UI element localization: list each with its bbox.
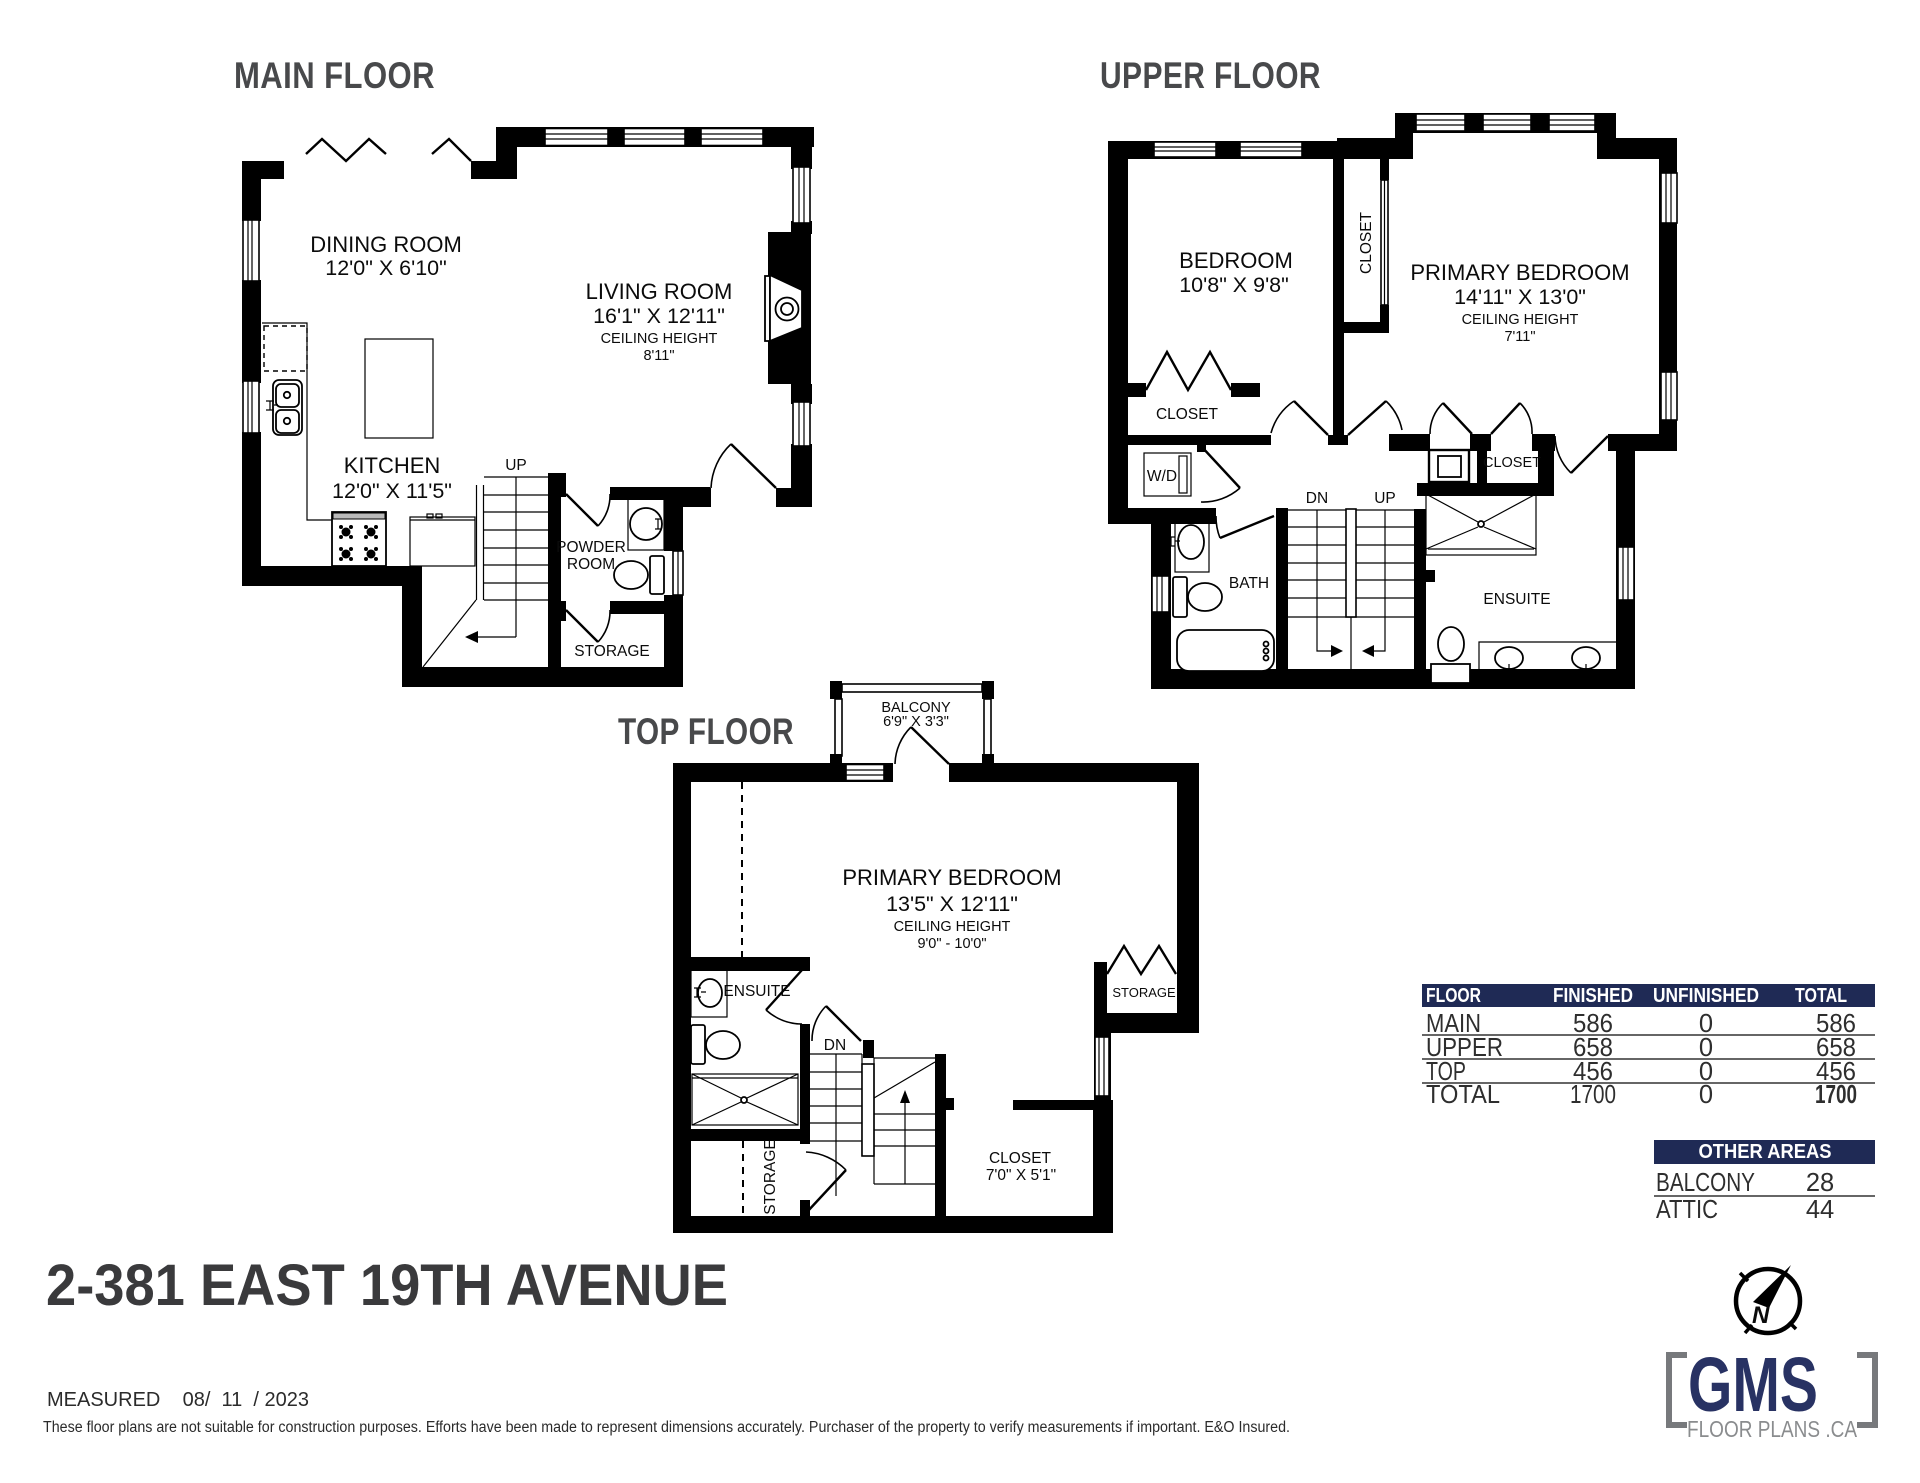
svg-text:BALCONY: BALCONY xyxy=(1656,1169,1755,1197)
svg-text:TOP FLOOR: TOP FLOOR xyxy=(618,711,794,752)
svg-text:10'8" X 9'8": 10'8" X 9'8" xyxy=(1179,273,1289,297)
svg-text:BATH: BATH xyxy=(1229,575,1269,592)
svg-text:1700: 1700 xyxy=(1815,1081,1857,1109)
svg-text:ENSUITE: ENSUITE xyxy=(1483,591,1550,608)
svg-text:DINING ROOM: DINING ROOM xyxy=(310,232,462,257)
svg-text:FLOOR PLANS .CA: FLOOR PLANS .CA xyxy=(1687,1416,1858,1442)
svg-text:1700: 1700 xyxy=(1570,1081,1616,1109)
svg-text:UP: UP xyxy=(505,457,527,474)
svg-text:MAIN FLOOR: MAIN FLOOR xyxy=(234,55,435,96)
svg-text:CLOSET: CLOSET xyxy=(1358,211,1375,274)
svg-text:12'0" X 11'5": 12'0" X 11'5" xyxy=(332,479,452,503)
svg-text:FLOOR: FLOOR xyxy=(1426,985,1481,1007)
svg-text:6'9" X 3'3": 6'9" X 3'3" xyxy=(883,714,949,730)
svg-text:N: N xyxy=(1752,1302,1770,1329)
svg-text:ATTIC: ATTIC xyxy=(1656,1196,1718,1224)
svg-text:2-381 EAST 19TH AVENUE: 2-381 EAST 19TH AVENUE xyxy=(46,1253,728,1318)
svg-text:CLOSET: CLOSET xyxy=(989,1150,1052,1167)
svg-text:12'0" X 6'10": 12'0" X 6'10" xyxy=(325,256,447,280)
svg-text:PRIMARY BEDROOM: PRIMARY BEDROOM xyxy=(1410,260,1629,285)
svg-text:ROOM: ROOM xyxy=(567,556,615,573)
svg-text:MEASURED 08/ 11 / 2023: MEASURED 08/ 11 / 2023 xyxy=(47,1389,309,1411)
svg-text:STORAGE: STORAGE xyxy=(762,1139,779,1215)
svg-text:DN: DN xyxy=(824,1037,846,1054)
svg-text:14'11" X 13'0": 14'11" X 13'0" xyxy=(1454,285,1586,309)
svg-text:LIVING ROOM: LIVING ROOM xyxy=(586,279,733,304)
svg-text:0: 0 xyxy=(1699,1081,1713,1109)
svg-text:FINISHED: FINISHED xyxy=(1553,985,1633,1007)
svg-text:These floor plans are not suit: These floor plans are not suitable for c… xyxy=(43,1419,1290,1436)
svg-text:7'0" X 5'1": 7'0" X 5'1" xyxy=(986,1167,1056,1184)
svg-text:13'5" X 12'11": 13'5" X 12'11" xyxy=(886,892,1018,916)
svg-text:9'0" - 10'0": 9'0" - 10'0" xyxy=(917,936,986,952)
svg-text:ENSUITE: ENSUITE xyxy=(723,983,790,1000)
svg-text:STORAGE: STORAGE xyxy=(1112,985,1176,1000)
svg-text:BEDROOM: BEDROOM xyxy=(1179,248,1293,273)
svg-text:CEILING HEIGHT: CEILING HEIGHT xyxy=(1462,312,1579,328)
svg-text:CLOSET: CLOSET xyxy=(1483,455,1541,471)
svg-text:KITCHEN: KITCHEN xyxy=(344,453,441,478)
svg-text:PRIMARY BEDROOM: PRIMARY BEDROOM xyxy=(842,865,1061,890)
svg-text:W/D: W/D xyxy=(1147,468,1177,485)
svg-text:8'11": 8'11" xyxy=(643,348,674,364)
svg-text:UNFINISHED: UNFINISHED xyxy=(1653,985,1759,1007)
svg-text:CEILING HEIGHT: CEILING HEIGHT xyxy=(601,331,718,347)
svg-text:TOTAL: TOTAL xyxy=(1426,1081,1500,1109)
svg-text:CLOSET: CLOSET xyxy=(1156,406,1219,423)
svg-text:CEILING HEIGHT: CEILING HEIGHT xyxy=(894,919,1011,935)
svg-text:7'11": 7'11" xyxy=(1504,329,1535,345)
svg-text:POWDER: POWDER xyxy=(556,539,626,556)
svg-text:UPPER FLOOR: UPPER FLOOR xyxy=(1100,55,1321,96)
svg-text:28: 28 xyxy=(1806,1169,1834,1197)
svg-text:TOTAL: TOTAL xyxy=(1795,985,1847,1007)
svg-text:16'1" X 12'11": 16'1" X 12'11" xyxy=(593,304,725,328)
svg-text:44: 44 xyxy=(1806,1196,1834,1224)
svg-text:OTHER AREAS: OTHER AREAS xyxy=(1699,1141,1832,1163)
svg-text:DN: DN xyxy=(1306,490,1328,507)
svg-text:STORAGE: STORAGE xyxy=(574,643,650,660)
svg-text:UP: UP xyxy=(1374,490,1396,507)
